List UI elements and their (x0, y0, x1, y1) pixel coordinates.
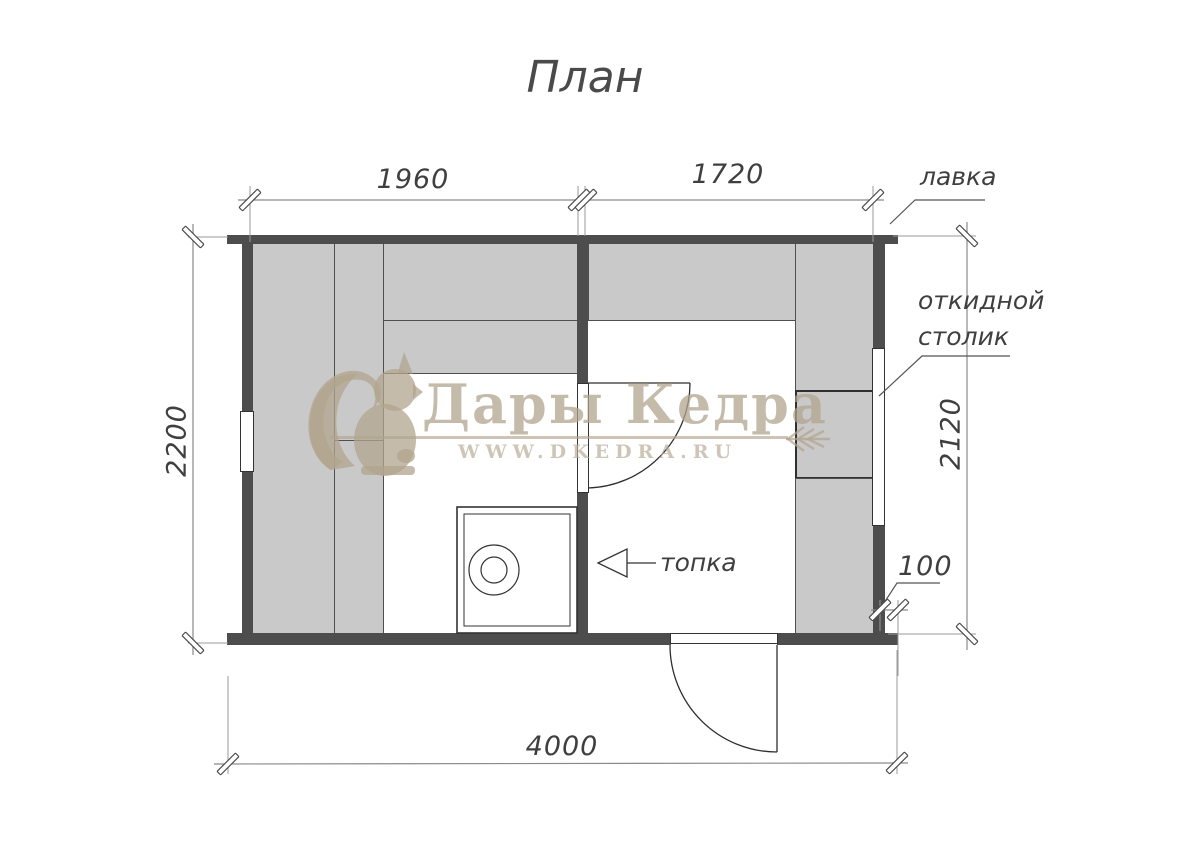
dim-left-depth: 2200 (162, 391, 193, 491)
dim-line-bottom (214, 763, 908, 764)
interior-door-swing-arc (588, 383, 690, 488)
dim-right-depth: 2120 (936, 384, 967, 484)
leader-bench (890, 200, 985, 224)
dim-rest-room-width: 1720 (678, 159, 778, 190)
floor-plan-canvas: План (0, 0, 1200, 848)
label-folding-table-line2: столик (918, 322, 1009, 351)
firebox-arrow (598, 549, 656, 577)
stove (457, 507, 577, 633)
label-bench: лавка (920, 162, 996, 191)
dimension-ticks (182, 189, 978, 775)
arrow-left-icon (598, 549, 627, 577)
dim-steam-room-width: 1960 (363, 164, 463, 195)
entrance-door-swing-arc (670, 645, 777, 752)
extension-lines (188, 186, 976, 774)
stove-outline (457, 507, 577, 633)
label-folding-table-line1: откидной (918, 286, 1044, 315)
dimension-lines (193, 200, 967, 764)
dim-total-length: 4000 (512, 731, 612, 762)
label-firebox: топка (660, 548, 737, 577)
dim-wall-ledge: 100 (898, 551, 953, 582)
